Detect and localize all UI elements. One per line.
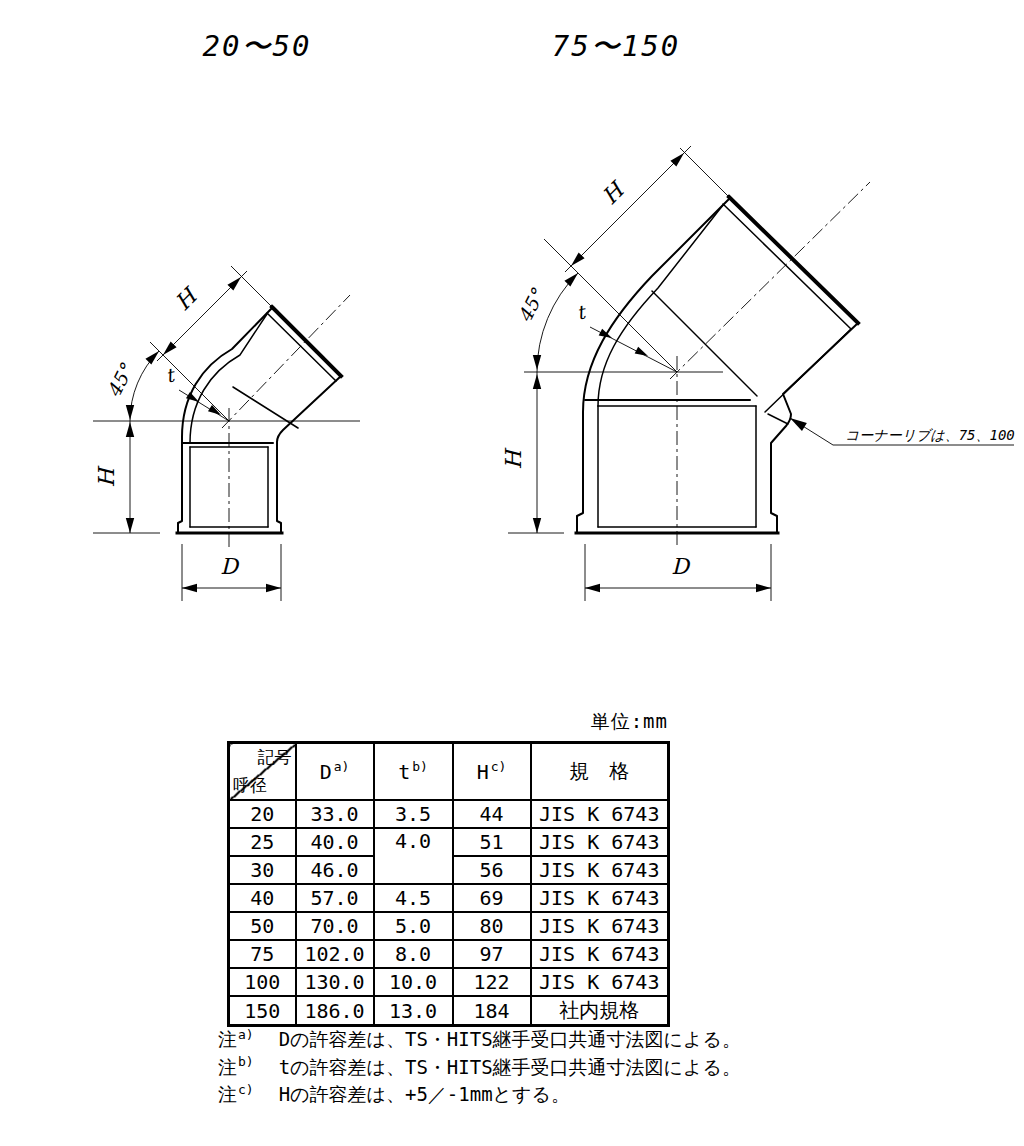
cell-t: 10.0 xyxy=(374,968,453,996)
cell-dn: 50 xyxy=(229,912,296,940)
cell-d: 46.0 xyxy=(296,856,374,884)
header-t-base: t xyxy=(398,760,410,784)
corner-rib-annotation: コーナーリブは、75、100 xyxy=(845,427,1015,443)
table-row: 75 102.0 8.0 97 JIS K 6743 xyxy=(229,940,669,968)
header-col-d: Da) xyxy=(296,743,374,801)
right-elbow-figure: H 45° t H D コーナーリブは、75、100 xyxy=(501,146,1015,601)
header-h-sup: c) xyxy=(491,759,507,774)
cell-t: 13.0 xyxy=(374,996,453,1026)
right-dim-label-h-diagonal: H xyxy=(597,176,630,209)
left-elbow-outline xyxy=(177,307,341,533)
cell-std: JIS K 6743 xyxy=(531,968,669,996)
cell-std: JIS K 6743 xyxy=(531,884,669,912)
right-dim-label-d: D xyxy=(671,554,691,579)
dimension-table: 記号 呼径 Da) tb) Hc) 規 格 20 33.0 3.5 xyxy=(227,741,670,1027)
footnote-text: tの許容差は、TS・HITS継手受口共通寸法図による。 xyxy=(279,1056,741,1078)
cell-std: JIS K 6743 xyxy=(531,912,669,940)
header-t-sup: b) xyxy=(412,759,428,774)
footnote-mark: 注 xyxy=(218,1083,237,1105)
left-dimensions xyxy=(93,266,360,601)
right-figure-title: 75〜150 xyxy=(552,29,680,63)
table-row: 100 130.0 10.0 122 JIS K 6743 xyxy=(229,968,669,996)
table-row: 150 186.0 13.0 184 社内規格 xyxy=(229,996,669,1026)
right-elbow-outline xyxy=(576,197,858,533)
cell-t-merged: 4.0 xyxy=(374,828,453,884)
header-col-t: tb) xyxy=(374,743,453,801)
left-dim-label-h-vertical: H xyxy=(94,466,119,488)
cell-dn: 150 xyxy=(229,996,296,1026)
drawing-sheet: 20〜50 75〜150 xyxy=(0,0,1024,1146)
left-elbow-figure: H 45° t H D xyxy=(93,266,360,601)
left-dim-label-d: D xyxy=(220,554,240,579)
cell-std: 社内規格 xyxy=(531,996,669,1026)
cell-d: 57.0 xyxy=(296,884,374,912)
cell-h: 69 xyxy=(453,884,531,912)
cell-std: JIS K 6743 xyxy=(531,940,669,968)
footnote-text: Hの許容差は、+5／-1mmとする。 xyxy=(279,1083,570,1105)
right-dim-label-angle: 45° xyxy=(513,284,549,325)
header-col-standard: 規 格 xyxy=(531,743,669,801)
left-dim-label-t: t xyxy=(164,363,178,387)
table-header-row: 記号 呼径 Da) tb) Hc) 規 格 xyxy=(229,743,669,801)
cell-h: 184 xyxy=(453,996,531,1026)
footnote-c: 注c)Hの許容差は、+5／-1mmとする。 xyxy=(218,1081,741,1109)
cell-t: 8.0 xyxy=(374,940,453,968)
right-dim-label-t: t xyxy=(575,300,589,324)
header-corner-cell: 記号 呼径 xyxy=(229,743,296,801)
unit-label: 単位:mm xyxy=(448,709,668,735)
left-dim-label-h-diagonal: H xyxy=(170,282,203,315)
cell-d: 186.0 xyxy=(296,996,374,1026)
cell-d: 102.0 xyxy=(296,940,374,968)
cell-dn: 40 xyxy=(229,884,296,912)
cell-dn: 25 xyxy=(229,828,296,856)
cell-h: 97 xyxy=(453,940,531,968)
table-row: 50 70.0 5.0 80 JIS K 6743 xyxy=(229,912,669,940)
footnote-text: Dの許容差は、TS・HITS継手受口共通寸法図による。 xyxy=(279,1028,741,1050)
cell-std: JIS K 6743 xyxy=(531,856,669,884)
footnotes: 注a)Dの許容差は、TS・HITS継手受口共通寸法図による。 注b)tの許容差は… xyxy=(218,1026,741,1109)
footnote-sup: a) xyxy=(238,1027,254,1042)
cell-dn: 30 xyxy=(229,856,296,884)
cell-d: 40.0 xyxy=(296,828,374,856)
cell-h: 56 xyxy=(453,856,531,884)
left-dim-label-angle: 45° xyxy=(102,359,138,400)
cell-d: 130.0 xyxy=(296,968,374,996)
table-row: 40 57.0 4.5 69 JIS K 6743 xyxy=(229,884,669,912)
cell-std: JIS K 6743 xyxy=(531,828,669,856)
cell-dn: 20 xyxy=(229,800,296,828)
table-row: 25 40.0 4.0 51 JIS K 6743 xyxy=(229,828,669,856)
footnote-sup: b) xyxy=(238,1054,254,1069)
footnote-a: 注a)Dの許容差は、TS・HITS継手受口共通寸法図による。 xyxy=(218,1026,741,1054)
table-row: 20 33.0 3.5 44 JIS K 6743 xyxy=(229,800,669,828)
footnote-mark: 注 xyxy=(218,1056,237,1078)
header-d-sup: a) xyxy=(334,759,350,774)
header-corner-diameter: 呼径 xyxy=(233,774,267,797)
cell-dn: 75 xyxy=(229,940,296,968)
cell-dn: 100 xyxy=(229,968,296,996)
cell-std: JIS K 6743 xyxy=(531,800,669,828)
header-col-h: Hc) xyxy=(453,743,531,801)
cell-d: 70.0 xyxy=(296,912,374,940)
cell-h: 80 xyxy=(453,912,531,940)
header-d-base: D xyxy=(320,760,332,784)
cell-h: 51 xyxy=(453,828,531,856)
footnote-b: 注b)tの許容差は、TS・HITS継手受口共通寸法図による。 xyxy=(218,1054,741,1082)
elbow-figures: 20〜50 75〜150 xyxy=(0,0,1024,662)
cell-t: 5.0 xyxy=(374,912,453,940)
cell-h: 122 xyxy=(453,968,531,996)
cell-t: 4.5 xyxy=(374,884,453,912)
header-h-base: H xyxy=(477,760,489,784)
footnote-mark: 注 xyxy=(218,1028,237,1050)
cell-t: 3.5 xyxy=(374,800,453,828)
footnote-sup: c) xyxy=(238,1082,254,1097)
right-dim-label-h-vertical: H xyxy=(501,448,526,470)
header-corner-symbol: 記号 xyxy=(258,746,292,769)
cell-h: 44 xyxy=(453,800,531,828)
left-figure-title: 20〜50 xyxy=(203,29,312,63)
cell-d: 33.0 xyxy=(296,800,374,828)
